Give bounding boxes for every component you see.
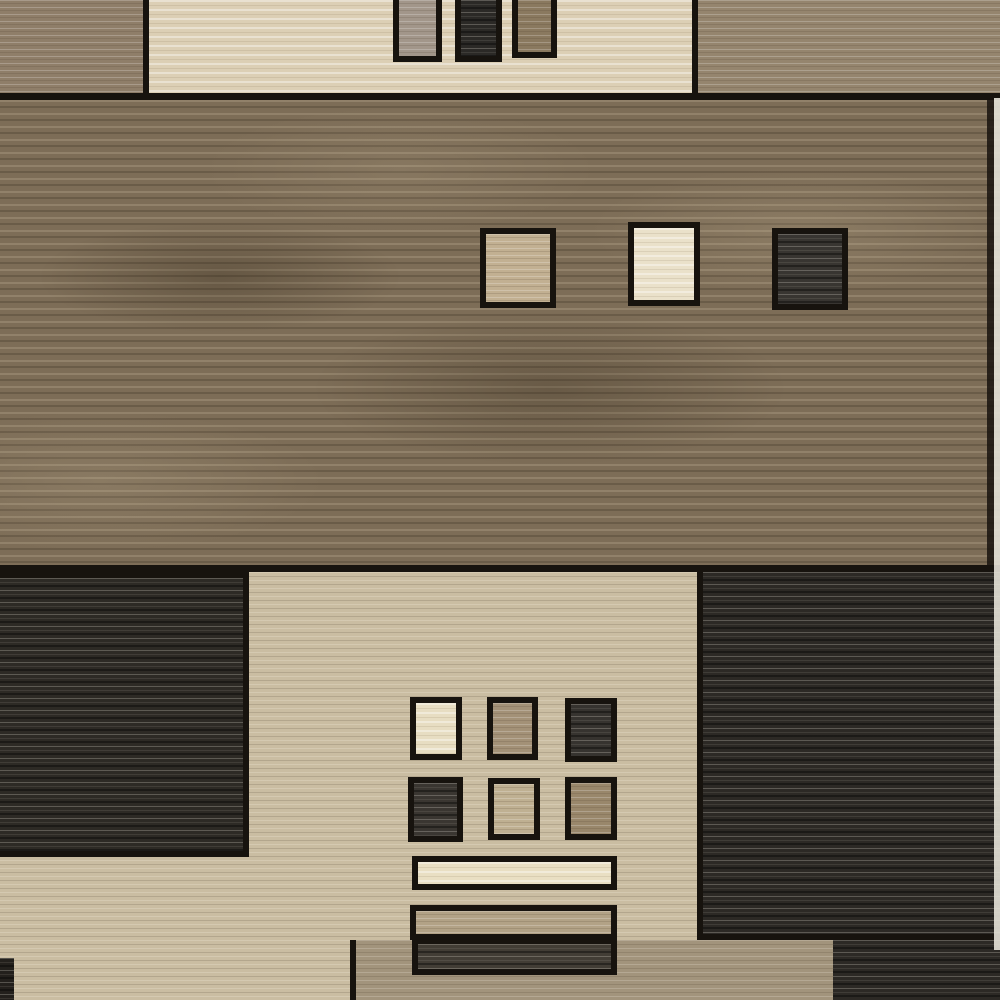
grid-square-r2c1-dark	[408, 777, 463, 842]
panel-top-right-brown	[692, 0, 1000, 93]
panel-right-charcoal	[697, 572, 1000, 940]
grid-square-r2c2-light-taupe	[488, 778, 540, 840]
divider-line-bottom	[0, 565, 1000, 572]
panel-top-left-brown	[0, 0, 149, 93]
top-accent-rect-dark	[455, 0, 502, 62]
rug-product-photo	[0, 0, 1000, 1000]
bar-dark	[412, 938, 617, 975]
photo-background-sliver	[994, 98, 1000, 950]
panel-left-charcoal	[0, 572, 249, 857]
mid-square-dark	[772, 228, 848, 310]
bar-taupe	[410, 905, 617, 940]
top-accent-rect-taupe	[393, 0, 442, 62]
edge-dark-strip	[0, 958, 14, 1000]
panel-bottom-right-charcoal	[833, 940, 1000, 1000]
panel-middle-brown-field	[0, 100, 1000, 565]
mid-square-tan	[480, 228, 556, 308]
top-accent-rect-brown	[512, 0, 557, 58]
grid-square-r1c3-dark	[565, 698, 617, 762]
grid-square-r1c2-taupe	[487, 697, 538, 760]
rug-right-edge-shadow	[987, 98, 994, 565]
grid-square-r2c3-brown	[565, 777, 617, 840]
grid-square-r1c1-cream	[410, 697, 462, 760]
mid-square-cream	[628, 222, 700, 306]
divider-line-top	[0, 93, 1000, 100]
bar-cream	[412, 856, 617, 890]
